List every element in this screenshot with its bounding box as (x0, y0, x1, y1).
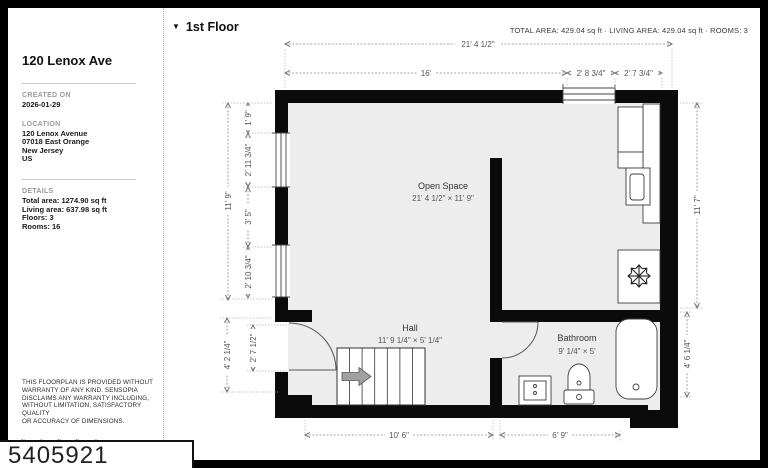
dim-left-seg3: 3' 5" (244, 209, 253, 225)
window-left-lower (272, 245, 290, 297)
snowflake-icon (628, 265, 650, 287)
bottom-wall (280, 405, 648, 418)
dim-left-seg4: 2' 10 3/4" (244, 255, 253, 288)
room-open-space-name: Open Space (418, 181, 468, 191)
room-hall-name: Hall (402, 323, 418, 333)
room-bathroom-name: Bathroom (557, 333, 596, 343)
room-bathroom-size: 9' 1/4" × 5' (558, 347, 596, 356)
left-wall-seg (275, 297, 288, 322)
floorplan-document: 120 Lenox Ave CREATED ON 2026-01-29 LOCA… (0, 0, 768, 468)
left-wall-seg (275, 90, 288, 133)
sink-basin (524, 381, 546, 400)
floorplan-drawing: 21' 4 1/2" 16' 2' 8 3/4" 2' 7 3/4" 11' 9… (0, 0, 768, 468)
dim-bottom-right: 6' 9" (552, 431, 568, 440)
right-wall (660, 90, 678, 412)
room-hall-size: 11' 9 1/4" × 5' 1/4" (378, 336, 442, 345)
window-left-upper (272, 133, 290, 187)
top-wall (275, 90, 563, 103)
dim-top-left: 16' (421, 69, 432, 78)
stairs (337, 348, 425, 405)
dim-left-lower: 4' 2 1/4" (223, 340, 232, 369)
dim-top-mid: 2' 8 3/4" (577, 69, 606, 78)
dim-top-right: 2' 7 3/4" (624, 69, 653, 78)
left-wall-seg (275, 187, 288, 245)
window-top (563, 84, 615, 104)
hall-wall-stub (288, 310, 312, 322)
dim-left-total: 11' 9" (224, 191, 233, 211)
photo-id-box: 5405921 (0, 440, 194, 468)
dim-left-seg1: 1' 9" (244, 110, 253, 126)
kitchen-cabinet (618, 152, 643, 168)
room-open-space-size: 21' 4 1/2" × 11' 9" (412, 194, 474, 203)
hall-bathroom-wall (490, 358, 502, 405)
oven-door (630, 174, 644, 200)
dim-right-lower: 4' 6 1/4" (683, 339, 692, 368)
dim-left-seg2: 2' 11 3/4" (244, 143, 253, 176)
interior-wall-vertical (490, 158, 502, 322)
photo-id: 5405921 (0, 442, 192, 468)
dim-right-upper: 11' 7" (693, 195, 702, 215)
bathroom-bottom-wall (630, 410, 678, 428)
toilet-bowl (568, 364, 590, 390)
dim-bottom-left: 10' 6" (389, 431, 409, 440)
kitchen-cabinet (618, 107, 643, 152)
dim-top-total: 21' 4 1/2" (461, 40, 494, 49)
bathtub-drain (633, 384, 639, 390)
dim-left-door: 2' 7 1/2" (249, 333, 258, 362)
